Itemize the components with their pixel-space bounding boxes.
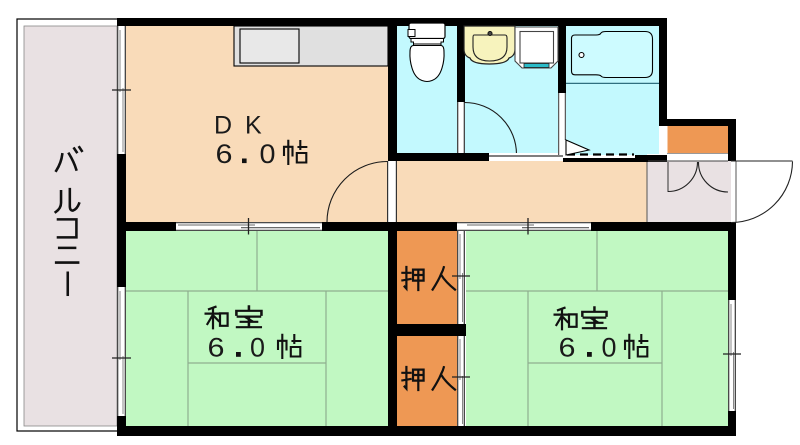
svg-text:0: 0 [250, 333, 265, 363]
svg-text:0: 0 [260, 139, 276, 169]
svg-text:6: 6 [559, 333, 576, 363]
svg-text:D K: D K [214, 112, 265, 140]
svg-text:0: 0 [602, 333, 617, 363]
svg-text:6: 6 [216, 139, 233, 169]
svg-text:6: 6 [208, 333, 225, 363]
